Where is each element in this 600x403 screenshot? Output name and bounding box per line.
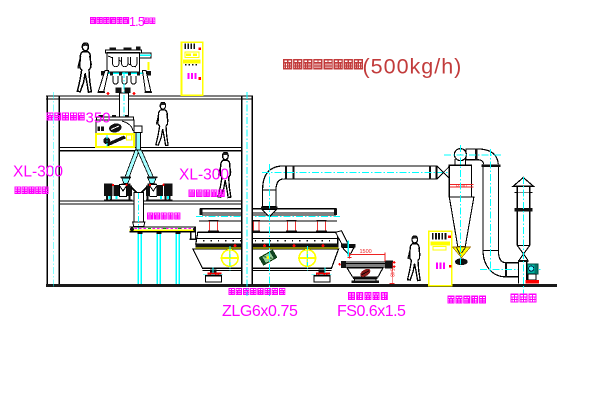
svg-text:XL-300: XL-300: [13, 164, 63, 181]
svg-text:1.5: 1.5: [129, 15, 145, 29]
svg-text:1500: 1500: [360, 249, 372, 255]
svg-text:P400: P400: [456, 183, 467, 188]
svg-text:(500kg/h): (500kg/h): [363, 55, 463, 79]
svg-text:ZLG6x0.75: ZLG6x0.75: [222, 303, 298, 320]
svg-text:350: 350: [86, 110, 111, 127]
svg-text:548: 548: [389, 269, 395, 278]
svg-text:XL-300: XL-300: [179, 167, 229, 184]
svg-text:FS0.6x1.5: FS0.6x1.5: [337, 303, 406, 320]
